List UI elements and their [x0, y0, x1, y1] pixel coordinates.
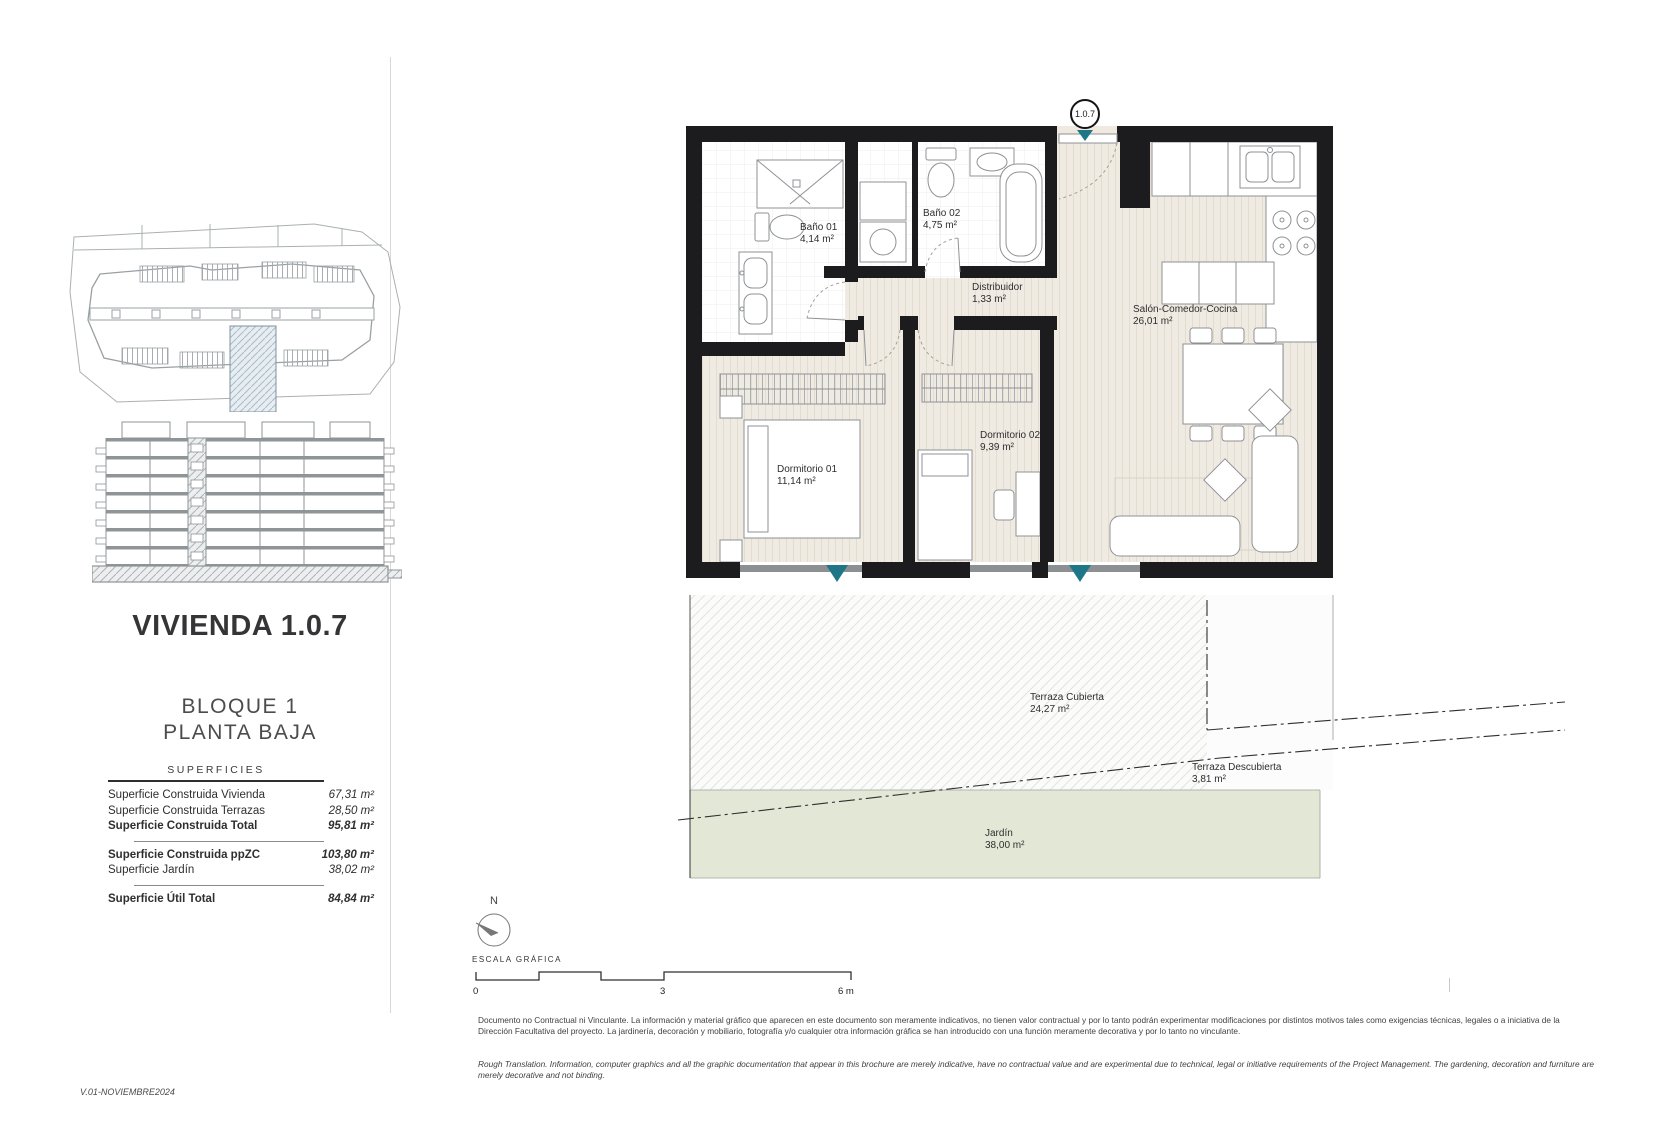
- surface-value: 95,81 m²: [328, 819, 374, 835]
- surface-value: 28,50 m²: [329, 804, 374, 820]
- toilet-icon: [755, 213, 804, 241]
- room-area-salon: 26,01 m²: [1133, 316, 1173, 327]
- block-floor-label: BLOQUE 1 PLANTA BAJA: [80, 694, 400, 746]
- surfaces-header: SUPERFICIES: [108, 764, 324, 776]
- bathtub-icon: [1000, 164, 1042, 262]
- table-row: Superficie Construida Vivienda 67,31 m²: [108, 788, 374, 804]
- shower-icon: [757, 160, 843, 208]
- unit-marker-label: 1.0.7: [1075, 109, 1095, 119]
- table-row: Superficie Construida ppZC 103,80 m²: [108, 848, 374, 864]
- room-area-jardin: 38,00 m²: [985, 840, 1025, 851]
- room-area-dormitorio-01: 11,14 m²: [777, 476, 816, 487]
- wardrobe-icon: [922, 374, 1032, 402]
- kitchen-island-icon: [1162, 262, 1274, 304]
- site-plan-unit-highlight: [230, 326, 276, 412]
- building-elevation-diagram: [92, 414, 402, 594]
- table-row: Superficie Construida Terrazas 28,50 m²: [108, 804, 374, 820]
- surface-label: Superficie Construida Total: [108, 819, 257, 835]
- terrace-garden-zone: Terraza Cubierta 24,27 m² Terraza Descub…: [678, 595, 1565, 878]
- table-row: Superficie Útil Total 84,84 m²: [108, 892, 374, 908]
- block-name: BLOQUE 1: [80, 694, 400, 720]
- room-label-distribuidor: Distribuidor: [972, 282, 1023, 293]
- disclaimer-english: Rough Translation. Information, computer…: [478, 1059, 1596, 1080]
- version-label: V.01-NOVIEMBRE2024: [80, 1087, 175, 1097]
- table-separator: [134, 841, 324, 842]
- room-area-terraza-cubierta: 24,27 m²: [1030, 704, 1070, 715]
- scale-bar: 0 3 6 m: [470, 964, 870, 998]
- surfaces-table: Superficie Construida Vivienda 67,31 m² …: [108, 788, 374, 907]
- surface-label: Superficie Construida ppZC: [108, 848, 260, 864]
- surface-value: 38,02 m²: [329, 863, 374, 879]
- table-row: Superficie Jardín 38,02 m²: [108, 863, 374, 879]
- scale-tick-0: 0: [473, 986, 478, 997]
- surfaces-rule: [108, 780, 324, 782]
- room-label-jardin: Jardín: [985, 828, 1013, 839]
- disclaimer-spanish: Documento no Contractual ni Vinculante. …: [478, 1015, 1596, 1036]
- wardrobe-icon: [720, 374, 885, 404]
- floor-plan: Terraza Cubierta 24,27 m² Terraza Descub…: [660, 80, 1620, 910]
- north-indicator: N: [468, 892, 524, 954]
- room-label-terraza-cubierta: Terraza Cubierta: [1030, 692, 1104, 703]
- room-area-bano-02: 4,75 m²: [923, 220, 958, 231]
- table-row: Superficie Construida Total 95,81 m²: [108, 819, 374, 835]
- site-plan-diagram: [62, 212, 412, 412]
- north-label: N: [490, 895, 498, 907]
- room-area-distribuidor: 1,33 m²: [972, 294, 1007, 305]
- room-label-salon: Salón-Comedor-Cocina: [1133, 304, 1238, 315]
- washer-dryer-stack-icon: [860, 182, 906, 262]
- surface-value: 67,31 m²: [329, 788, 374, 804]
- room-label-bano-01: Baño 01: [800, 222, 838, 233]
- scale-tick-3: 3: [660, 986, 665, 997]
- surface-label: Superficie Construida Vivienda: [108, 788, 265, 804]
- room-area-dormitorio-02: 9,39 m²: [980, 442, 1015, 453]
- table-separator: [134, 885, 324, 886]
- floor-name: PLANTA BAJA: [80, 720, 400, 746]
- crop-mark: [1449, 978, 1450, 992]
- toilet-icon: [926, 148, 956, 197]
- surface-label: Superficie Útil Total: [108, 892, 215, 908]
- scale-label: ESCALA GRÁFICA: [472, 955, 562, 964]
- unit-title: VIVIENDA 1.0.7: [80, 610, 400, 643]
- double-sink-vanity-icon: [739, 252, 772, 334]
- room-label-terraza-descubierta: Terraza Descubierta: [1192, 762, 1282, 773]
- brochure-page: VIVIENDA 1.0.7 BLOQUE 1 PLANTA BAJA SUPE…: [0, 0, 1663, 1146]
- room-label-dormitorio-02: Dormitorio 02: [980, 430, 1040, 441]
- room-label-bano-02: Baño 02: [923, 208, 961, 219]
- room-area-bano-01: 4,14 m²: [800, 234, 835, 245]
- room-area-terraza-descubierta: 3,81 m²: [1192, 774, 1227, 785]
- room-label-dormitorio-01: Dormitorio 01: [777, 464, 837, 475]
- scale-tick-6: 6 m: [838, 986, 854, 997]
- surface-value: 103,80 m²: [322, 848, 374, 864]
- surface-label: Superficie Construida Terrazas: [108, 804, 265, 820]
- surface-value: 84,84 m²: [328, 892, 374, 908]
- bed-icon: [918, 450, 972, 560]
- surface-label: Superficie Jardín: [108, 863, 194, 879]
